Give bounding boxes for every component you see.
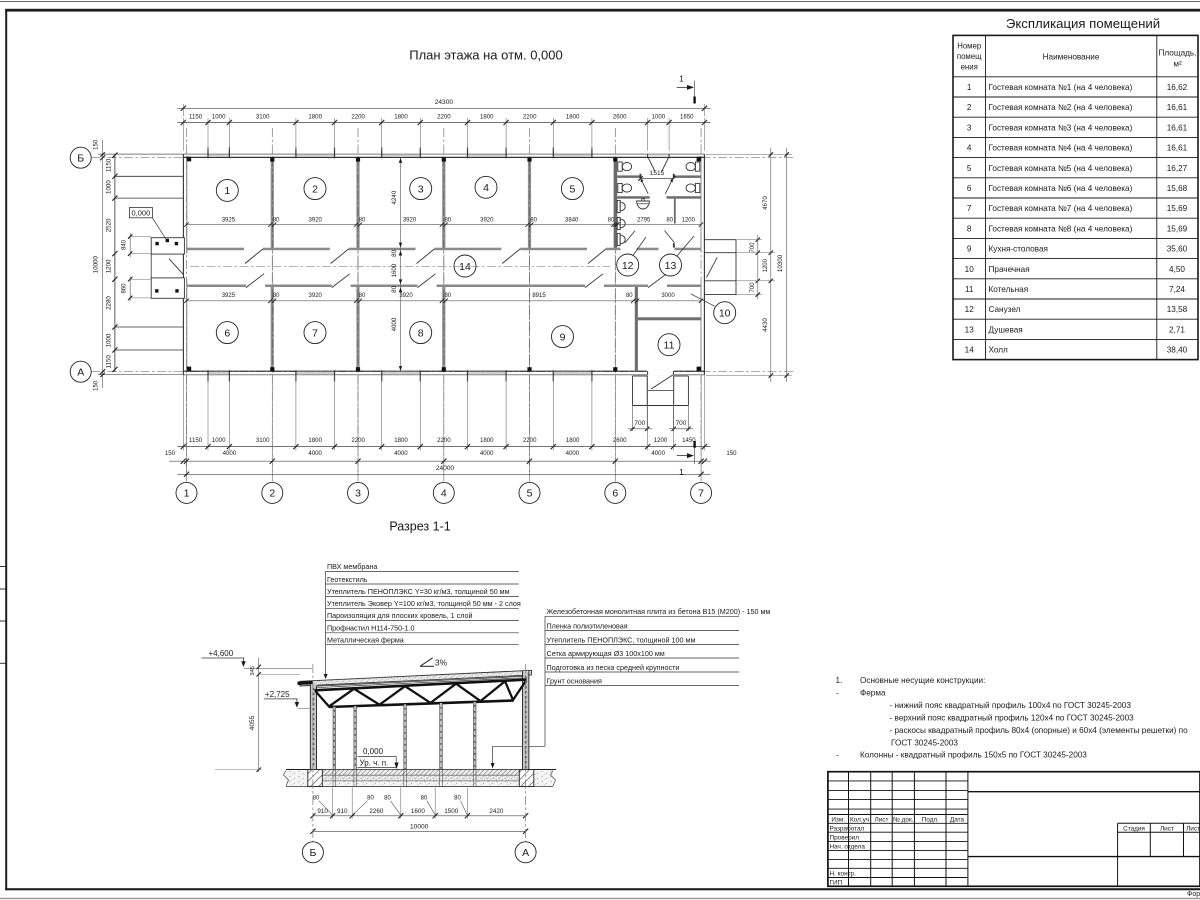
svg-text:4: 4 [441, 488, 447, 500]
svg-text:12: 12 [622, 260, 634, 272]
svg-text:3920: 3920 [403, 217, 417, 223]
svg-text:Гостевая комната №2 (на 4 чело: Гостевая комната №2 (на 4 человека) [989, 103, 1133, 112]
svg-text:1800: 1800 [394, 437, 408, 444]
svg-text:15,69: 15,69 [1167, 224, 1188, 233]
svg-text:150: 150 [165, 450, 176, 457]
svg-text:12: 12 [965, 305, 975, 314]
svg-text:4430: 4430 [762, 318, 769, 332]
svg-text:910: 910 [317, 808, 328, 815]
svg-text:4: 4 [483, 182, 489, 194]
svg-text:1000: 1000 [212, 114, 226, 121]
svg-text:Нач. отдела: Нач. отдела [830, 844, 866, 851]
svg-text:80: 80 [608, 217, 615, 223]
svg-text:1800: 1800 [394, 114, 408, 121]
svg-text:-: - [836, 689, 839, 698]
svg-text:Гостевая комната №1 (на 4 чело: Гостевая комната №1 (на 4 человека) [989, 83, 1133, 92]
svg-text:ения: ения [961, 63, 978, 72]
svg-text:2: 2 [967, 103, 972, 112]
svg-text:1: 1 [679, 74, 684, 84]
svg-text:Проверил: Проверил [830, 835, 860, 842]
svg-text:Ур. ч. п.: Ур. ч. п. [360, 758, 389, 767]
svg-text:3925: 3925 [222, 217, 236, 223]
svg-text:4000: 4000 [394, 450, 408, 457]
svg-text:1200: 1200 [105, 259, 112, 273]
svg-text:Котельная: Котельная [989, 285, 1029, 294]
svg-text:1.: 1. [836, 676, 843, 685]
svg-text:150: 150 [94, 380, 100, 391]
svg-text:План этажа на отм. 0,000: План этажа на отм. 0,000 [409, 48, 563, 63]
svg-text:80: 80 [273, 293, 280, 299]
svg-text:2260: 2260 [369, 808, 384, 815]
svg-text:9: 9 [967, 245, 972, 254]
svg-text:14: 14 [459, 261, 471, 273]
svg-text:помещ: помещ [957, 52, 982, 61]
svg-text:11: 11 [664, 340, 675, 352]
svg-text:1200: 1200 [654, 437, 668, 444]
svg-text:3100: 3100 [256, 437, 270, 444]
svg-text:0,000: 0,000 [363, 747, 384, 756]
svg-text:910: 910 [337, 808, 348, 815]
svg-text:1: 1 [967, 83, 972, 92]
svg-text:3920: 3920 [309, 293, 323, 299]
svg-text:7,24: 7,24 [1169, 285, 1185, 294]
svg-text:ГИП: ГИП [830, 880, 843, 887]
svg-text:Душевая: Душевая [989, 325, 1023, 334]
svg-text:80: 80 [421, 796, 428, 802]
svg-text:6: 6 [967, 184, 972, 193]
svg-text:1150: 1150 [189, 114, 203, 121]
svg-text:24300: 24300 [435, 99, 454, 106]
svg-text:3: 3 [418, 183, 424, 195]
svg-text:Формат: Формат [1187, 891, 1200, 898]
svg-text:- раскосы квадратный профиль 8: - раскосы квадратный профиль 80х4 (опорн… [890, 726, 1189, 735]
svg-text:6: 6 [612, 488, 618, 500]
svg-text:2280: 2280 [105, 296, 112, 310]
svg-text:- нижний пояс квадратный профи: - нижний пояс квадратный профиль 100х4 п… [890, 701, 1132, 710]
svg-text:3925: 3925 [222, 293, 236, 299]
svg-text:Пароизоляция для плоских крове: Пароизоляция для плоских кровель, 1 слой [327, 611, 473, 620]
svg-text:Гостевая комната №6 (на 4 чело: Гостевая комната №6 (на 4 человека) [989, 184, 1133, 193]
svg-text:8915: 8915 [532, 293, 546, 299]
svg-text:Экспликация помещений: Экспликация помещений [1006, 16, 1160, 31]
svg-text:1800: 1800 [480, 437, 494, 444]
svg-text:16,61: 16,61 [1167, 144, 1188, 153]
svg-text:10: 10 [965, 265, 975, 274]
svg-text:1: 1 [224, 185, 230, 197]
svg-text:80: 80 [454, 796, 461, 802]
svg-text:Гостевая комната №5 (на 4 чело: Гостевая комната №5 (на 4 человека) [989, 164, 1133, 173]
svg-text:700: 700 [750, 282, 756, 293]
svg-text:Номер: Номер [957, 42, 982, 51]
svg-text:3920: 3920 [309, 217, 323, 223]
svg-text:24000: 24000 [436, 465, 455, 472]
svg-text:80: 80 [367, 796, 374, 802]
svg-text:80: 80 [391, 285, 398, 292]
svg-text:№ док.: № док. [893, 816, 914, 823]
svg-text:80: 80 [359, 217, 366, 223]
svg-text:Лист: Лист [875, 816, 889, 823]
svg-text:35,60: 35,60 [1167, 245, 1188, 254]
svg-text:10000: 10000 [93, 256, 100, 274]
svg-text:700: 700 [676, 420, 687, 427]
svg-text:Разрез 1-1: Разрез 1-1 [389, 520, 450, 534]
svg-text:7: 7 [698, 488, 704, 500]
svg-text:5: 5 [527, 488, 533, 500]
svg-text:1650: 1650 [680, 114, 694, 121]
svg-text:5: 5 [569, 183, 575, 195]
svg-text:840: 840 [122, 239, 128, 250]
svg-text:Пленка полиэтиленовая: Пленка полиэтиленовая [547, 621, 628, 630]
svg-text:Гостевая комната №7 (на 4 чело: Гостевая комната №7 (на 4 человека) [989, 204, 1133, 213]
svg-text:13,58: 13,58 [1167, 305, 1188, 314]
svg-text:А: А [77, 367, 84, 379]
svg-text:1000: 1000 [105, 180, 112, 194]
svg-text:1600: 1600 [411, 808, 426, 815]
svg-text:11: 11 [965, 285, 974, 294]
svg-text:1150: 1150 [105, 158, 112, 172]
svg-text:3%: 3% [435, 657, 448, 667]
svg-text:700: 700 [634, 420, 645, 427]
svg-text:-: - [836, 751, 839, 760]
svg-text:4000: 4000 [566, 450, 580, 457]
svg-text:Кухня-столовая: Кухня-столовая [989, 245, 1048, 254]
svg-text:Лист: Лист [1160, 825, 1174, 832]
svg-text:1800: 1800 [308, 114, 322, 121]
svg-text:6: 6 [224, 327, 230, 339]
svg-text:1: 1 [679, 467, 684, 477]
svg-text:Стадия: Стадия [1123, 825, 1145, 832]
svg-text:1: 1 [184, 488, 190, 500]
svg-text:4: 4 [967, 144, 972, 153]
svg-text:1515: 1515 [650, 170, 665, 177]
svg-text:2200: 2200 [437, 114, 451, 121]
svg-text:Сетка армирующая Ø3 100х100 мм: Сетка армирующая Ø3 100х100 мм [547, 649, 665, 658]
svg-text:1150: 1150 [105, 355, 112, 369]
svg-text:10: 10 [719, 308, 731, 320]
svg-text:16,61: 16,61 [1167, 103, 1188, 112]
svg-text:ГОСТ 30245-2003: ГОСТ 30245-2003 [891, 738, 958, 747]
svg-text:Н. контр.: Н. контр. [830, 871, 857, 878]
svg-text:7: 7 [967, 204, 972, 213]
svg-text:м²: м² [1173, 60, 1182, 69]
svg-text:860: 860 [122, 283, 128, 294]
svg-text:3: 3 [967, 123, 972, 132]
svg-text:Гостевая комната №4 (на 4 чело: Гостевая комната №4 (на 4 человека) [989, 144, 1133, 153]
svg-text:13: 13 [665, 260, 677, 272]
svg-text:Б: Б [309, 847, 316, 859]
svg-text:Геотекстиль: Геотекстиль [327, 575, 368, 584]
svg-text:700: 700 [750, 242, 756, 253]
svg-text:1600: 1600 [391, 263, 398, 277]
svg-text:1800: 1800 [566, 437, 580, 444]
svg-text:Разработал: Разработал [830, 824, 865, 832]
svg-text:1200: 1200 [763, 258, 769, 272]
svg-text:Колонны - квадратный профиль 1: Колонны - квадратный профиль 150х5 по ГО… [860, 751, 1087, 760]
svg-text:Холл: Холл [989, 346, 1009, 355]
svg-text:Утеплитель ПЕНОПЛЭКС Y=30 кг/м: Утеплитель ПЕНОПЛЭКС Y=30 кг/м3, толщино… [327, 587, 510, 596]
svg-text:2: 2 [312, 183, 318, 195]
svg-text:2200: 2200 [523, 114, 537, 121]
svg-text:Утеплитель Эковер Y=100 кг/м3,: Утеплитель Эковер Y=100 кг/м3, толщиной … [327, 599, 521, 608]
svg-text:9: 9 [560, 331, 566, 343]
svg-text:Ферма: Ферма [860, 689, 886, 698]
svg-text:+2,725: +2,725 [265, 690, 290, 699]
svg-text:80: 80 [666, 217, 673, 223]
svg-text:2200: 2200 [437, 437, 451, 444]
svg-text:150: 150 [94, 139, 100, 150]
svg-text:1500: 1500 [444, 808, 459, 815]
svg-text:2795: 2795 [637, 217, 651, 223]
svg-text:- верхний пояс квадратный проф: - верхний пояс квадратный профиль 120х4 … [890, 713, 1135, 722]
svg-text:16,62: 16,62 [1167, 83, 1188, 92]
svg-text:1200: 1200 [682, 217, 696, 223]
svg-text:Утеплитель ПЕНОПЛЭКС, толщиной: Утеплитель ПЕНОПЛЭКС, толщиной 100 мм [547, 635, 696, 644]
svg-text:80: 80 [313, 796, 320, 802]
svg-text:2520: 2520 [105, 218, 112, 232]
svg-text:+4,600: +4,600 [209, 649, 234, 658]
svg-text:Гостевая комната №3 (на 4 чело: Гостевая комната №3 (на 4 человека) [989, 123, 1133, 132]
svg-text:4240: 4240 [391, 190, 398, 204]
svg-text:4,50: 4,50 [1169, 265, 1185, 274]
svg-text:13: 13 [965, 325, 975, 334]
svg-text:1000: 1000 [652, 114, 666, 121]
svg-text:80: 80 [384, 796, 391, 802]
svg-text:3000: 3000 [661, 293, 675, 299]
svg-text:1800: 1800 [566, 114, 580, 121]
svg-text:80: 80 [444, 217, 451, 223]
svg-text:2,71: 2,71 [1169, 325, 1185, 334]
svg-text:Грунт основания: Грунт основания [547, 676, 603, 685]
svg-text:3100: 3100 [256, 114, 270, 121]
svg-text:Санузел: Санузел [989, 305, 1021, 314]
svg-text:150: 150 [726, 450, 737, 457]
svg-text:2: 2 [269, 488, 275, 500]
svg-text:Гостевая комната №8 (на 4 чело: Гостевая комната №8 (на 4 человека) [989, 224, 1133, 233]
svg-text:1150: 1150 [189, 437, 203, 444]
svg-text:Изм.: Изм. [831, 816, 845, 823]
svg-text:1800: 1800 [308, 437, 322, 444]
svg-text:15,68: 15,68 [1167, 184, 1188, 193]
svg-text:10300: 10300 [777, 254, 784, 272]
svg-text:3840: 3840 [565, 217, 579, 223]
svg-text:4670: 4670 [762, 196, 769, 210]
svg-text:4000: 4000 [308, 450, 322, 457]
svg-text:80: 80 [626, 293, 633, 299]
svg-text:2420: 2420 [489, 808, 504, 815]
svg-text:80: 80 [273, 217, 280, 223]
svg-text:4055: 4055 [249, 715, 256, 730]
svg-text:345: 345 [250, 666, 256, 676]
svg-text:3920: 3920 [399, 293, 413, 299]
svg-text:10000: 10000 [410, 823, 429, 830]
svg-text:80: 80 [359, 293, 366, 299]
svg-text:Листов: Листов [1186, 825, 1200, 832]
svg-text:4000: 4000 [480, 450, 494, 457]
svg-text:Площадь,: Площадь, [1159, 49, 1197, 58]
svg-text:Б: Б [77, 153, 84, 165]
svg-text:2200: 2200 [523, 437, 537, 444]
svg-text:Дата: Дата [950, 816, 965, 823]
svg-text:Основные несущие конструкции:: Основные несущие конструкции: [860, 676, 985, 685]
svg-text:5: 5 [967, 164, 972, 173]
svg-text:4000: 4000 [651, 450, 665, 457]
svg-text:80: 80 [391, 249, 398, 256]
svg-text:8: 8 [967, 224, 972, 233]
svg-text:4000: 4000 [223, 450, 237, 457]
svg-text:38,40: 38,40 [1167, 346, 1188, 355]
svg-text:4000: 4000 [391, 317, 398, 331]
svg-text:ПВХ мембрана: ПВХ мембрана [327, 562, 377, 571]
svg-text:14: 14 [965, 346, 975, 355]
svg-text:А: А [522, 847, 529, 859]
svg-text:2200: 2200 [351, 114, 365, 121]
svg-text:15,69: 15,69 [1167, 204, 1188, 213]
svg-text:1000: 1000 [212, 437, 226, 444]
svg-text:80: 80 [444, 293, 451, 299]
svg-text:16,27: 16,27 [1167, 164, 1188, 173]
svg-text:0,000: 0,000 [132, 209, 151, 218]
svg-text:Наименование: Наименование [1043, 53, 1100, 62]
svg-text:Подп.: Подп. [922, 816, 939, 823]
svg-text:2600: 2600 [613, 114, 627, 121]
svg-text:2200: 2200 [351, 437, 365, 444]
svg-text:Железобетонная монолитная плит: Железобетонная монолитная плита из бетон… [547, 607, 771, 616]
svg-text:7: 7 [312, 327, 318, 339]
svg-text:Кол.уч: Кол.уч [850, 816, 869, 823]
svg-text:Профнастил Н114-750-1.0: Профнастил Н114-750-1.0 [327, 624, 415, 633]
svg-text:Металлическая ферма: Металлическая ферма [327, 636, 404, 645]
svg-text:16,61: 16,61 [1167, 123, 1188, 132]
svg-text:3920: 3920 [480, 217, 494, 223]
svg-text:8: 8 [418, 327, 424, 339]
svg-text:80: 80 [530, 217, 537, 223]
svg-text:1800: 1800 [480, 114, 494, 121]
svg-text:1000: 1000 [105, 333, 112, 347]
svg-text:Подготовка из песка средней кр: Подготовка из песка средней крупности [547, 663, 680, 672]
svg-text:3: 3 [355, 488, 361, 500]
svg-text:Прачечная: Прачечная [989, 265, 1030, 274]
